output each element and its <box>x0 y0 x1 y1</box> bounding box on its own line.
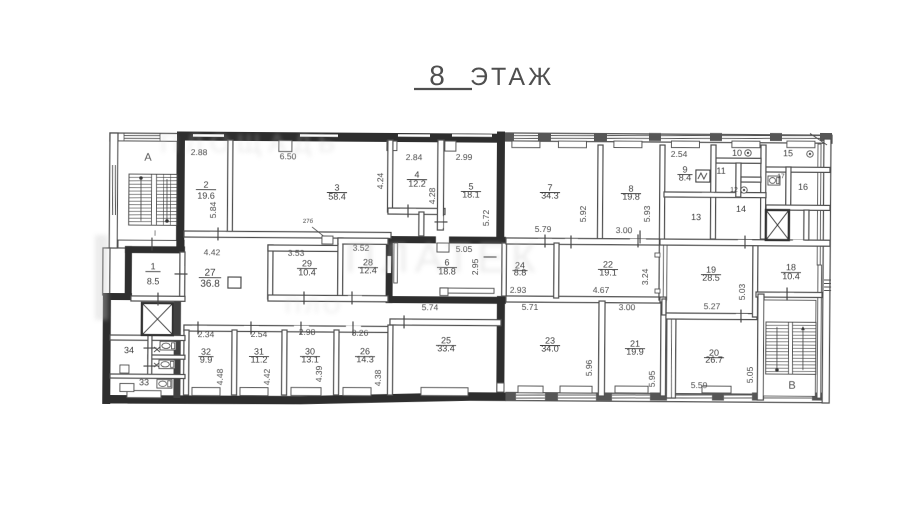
svg-text:8.5: 8.5 <box>147 276 160 286</box>
svg-text:2.84: 2.84 <box>406 152 423 162</box>
svg-text:ПЛАТЕК: ПЛАТЕК <box>345 234 542 281</box>
svg-text:5.96: 5.96 <box>584 359 594 376</box>
svg-text:4.42: 4.42 <box>262 368 272 385</box>
svg-text:ПЛОЩАДЬ: ПЛОЩАДЬ <box>160 128 342 158</box>
svg-text:5.71: 5.71 <box>522 302 539 312</box>
svg-text:10.4: 10.4 <box>298 267 316 277</box>
svg-text:8.4: 8.4 <box>679 172 692 182</box>
svg-text:34.0: 34.0 <box>541 343 559 353</box>
svg-text:ЭТАЖ: ЭТАЖ <box>470 63 554 91</box>
svg-text:13.1: 13.1 <box>301 354 319 364</box>
svg-text:19.1: 19.1 <box>599 267 617 277</box>
svg-text:12: 12 <box>730 187 738 194</box>
svg-text:5.92: 5.92 <box>578 205 588 222</box>
svg-text:2.34: 2.34 <box>198 329 215 339</box>
svg-text:34: 34 <box>124 345 134 355</box>
svg-text:17: 17 <box>777 173 785 180</box>
svg-text:5.05: 5.05 <box>745 366 755 383</box>
svg-text:4.67: 4.67 <box>593 285 610 295</box>
svg-text:2: 2 <box>204 179 209 189</box>
svg-text:18.1: 18.1 <box>462 189 480 199</box>
svg-text:3.24: 3.24 <box>640 268 650 285</box>
svg-text:5.72: 5.72 <box>481 209 491 226</box>
svg-text:16: 16 <box>798 182 808 192</box>
svg-text:5.93: 5.93 <box>642 205 652 222</box>
svg-text:28.5: 28.5 <box>702 272 720 282</box>
svg-text:4.48: 4.48 <box>215 368 225 385</box>
svg-text:I: I <box>154 229 156 238</box>
svg-text:5.74: 5.74 <box>422 302 439 312</box>
svg-text:27: 27 <box>204 267 216 278</box>
svg-text:19.8: 19.8 <box>622 191 640 201</box>
svg-text:19.9: 19.9 <box>626 346 644 356</box>
svg-text:26.7: 26.7 <box>705 354 723 364</box>
svg-text:2.93: 2.93 <box>510 285 527 295</box>
svg-text:33: 33 <box>139 377 149 387</box>
svg-text:ПЛО: ПЛО <box>285 293 344 318</box>
svg-text:3.53: 3.53 <box>288 248 305 258</box>
svg-text:11: 11 <box>716 166 725 176</box>
svg-text:14: 14 <box>736 204 746 214</box>
svg-text:58.4: 58.4 <box>328 191 346 201</box>
svg-text:5.84: 5.84 <box>208 201 218 218</box>
svg-text:4.24: 4.24 <box>375 172 385 189</box>
svg-text:A: A <box>144 152 152 164</box>
svg-text:5.03: 5.03 <box>737 283 747 300</box>
svg-text:8: 8 <box>429 60 445 91</box>
svg-text:5.27: 5.27 <box>704 301 721 311</box>
svg-text:33.4: 33.4 <box>437 343 455 353</box>
svg-text:27б: 27б <box>303 218 314 225</box>
svg-text:1: 1 <box>151 261 156 271</box>
svg-text:19.6: 19.6 <box>197 190 215 200</box>
svg-text:14.3: 14.3 <box>356 354 374 364</box>
svg-text:2.54: 2.54 <box>251 329 268 339</box>
svg-text:2.98: 2.98 <box>299 327 316 337</box>
svg-text:36.8: 36.8 <box>200 278 220 289</box>
svg-text:5.95: 5.95 <box>647 370 657 387</box>
svg-text:3.00: 3.00 <box>616 225 633 235</box>
svg-text:10: 10 <box>732 148 742 158</box>
svg-text:3.00: 3.00 <box>619 302 636 312</box>
svg-text:34.3: 34.3 <box>541 190 559 200</box>
svg-text:3.26: 3.26 <box>352 328 369 338</box>
svg-text:4.28: 4.28 <box>427 187 437 204</box>
svg-text:2.99: 2.99 <box>456 152 473 162</box>
svg-text:10.4: 10.4 <box>782 271 800 281</box>
svg-text:В: В <box>788 380 795 392</box>
svg-text:5.79: 5.79 <box>535 224 552 234</box>
svg-text:15: 15 <box>783 148 793 158</box>
svg-text:5.59: 5.59 <box>691 380 708 390</box>
svg-text:2.54: 2.54 <box>671 149 688 159</box>
svg-text:4.42: 4.42 <box>204 247 221 257</box>
svg-text:4.39: 4.39 <box>314 365 324 382</box>
svg-text:11.2: 11.2 <box>251 354 268 364</box>
svg-text:12.2: 12.2 <box>408 178 426 188</box>
svg-text:13: 13 <box>691 212 701 222</box>
svg-text:4.38: 4.38 <box>373 369 383 386</box>
svg-text:9.9: 9.9 <box>200 354 213 364</box>
